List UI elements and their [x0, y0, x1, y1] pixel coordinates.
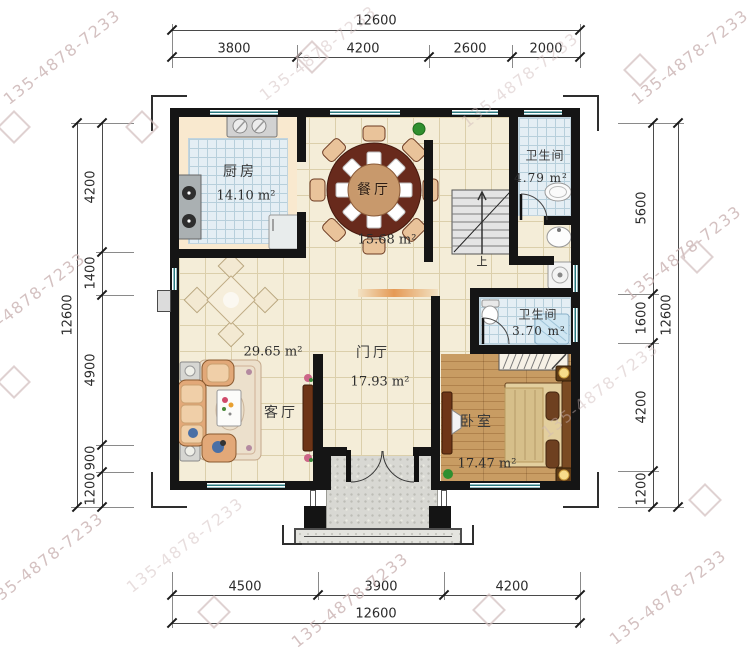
dim-line-top-overall — [172, 30, 580, 31]
dim-bottom-segment-2: 4200 — [495, 580, 528, 595]
wall — [313, 354, 323, 481]
wall — [509, 108, 518, 265]
dim-line-right-segments — [653, 123, 654, 507]
dim-left-overall: 12600 — [61, 294, 76, 335]
dim-line-bottom-overall — [172, 623, 580, 624]
wall — [470, 345, 580, 354]
wall — [331, 447, 347, 456]
dim-left-segment-4: 1200 — [84, 472, 99, 505]
dim-line-top-segments — [172, 57, 580, 58]
wall — [431, 296, 440, 490]
floor-plan: 厨房 14.10 m² 餐厅 15.68 m² 卫生间 4.79 m² 卫生间 … — [0, 0, 750, 657]
dim-left-segment-3: 900 — [84, 446, 99, 471]
dim-top-segment-2: 2600 — [453, 42, 486, 57]
dim-line-right-overall — [678, 123, 679, 507]
bedroom-label: 卧室 — [460, 411, 494, 431]
wall — [478, 288, 580, 297]
corner-mark — [282, 525, 302, 545]
bath-upper-area: 4.79 m² — [514, 171, 568, 185]
dim-line-left-segments — [102, 123, 103, 507]
wall — [170, 108, 179, 490]
watermark-diamond — [0, 110, 31, 144]
watermark-text: 135-4878-7233 — [0, 508, 107, 611]
corner-mark — [563, 95, 599, 131]
wall — [509, 256, 554, 265]
dim-left-segment-2: 4900 — [84, 353, 99, 386]
watermark-text: 135-4878-7233 — [628, 5, 750, 108]
dim-top-segment-3: 2000 — [529, 42, 562, 57]
watermark-text: 135-4878-7233 — [0, 5, 124, 108]
dim-top-segment-1: 4200 — [346, 42, 379, 57]
window — [573, 265, 578, 292]
corner-mark — [151, 95, 187, 131]
watermark-diamond — [688, 483, 722, 517]
dim-right-segment-1: 1600 — [635, 301, 650, 334]
porch-column — [304, 506, 326, 528]
corner-mark — [454, 525, 474, 545]
window — [210, 110, 278, 115]
dim-line-left-overall — [77, 123, 78, 507]
dim-left-segment-1: 1400 — [84, 256, 99, 289]
window — [330, 110, 400, 115]
bedroom-area: 17.47 m² — [458, 457, 517, 472]
porch-column — [429, 506, 451, 528]
stairs-up-label: 上 — [477, 253, 488, 269]
bath-lower-area: 3.70 m² — [512, 324, 566, 338]
dim-bottom-segment-1: 3900 — [364, 580, 397, 595]
dim-right-segment-2: 4200 — [635, 390, 650, 423]
foyer-area: 17.93 m² — [351, 375, 410, 390]
watermark-diamond — [0, 365, 31, 399]
wall — [322, 447, 331, 490]
kitchen-area: 14.10 m² — [217, 189, 276, 204]
dim-right-overall: 12600 — [660, 294, 675, 335]
wall — [424, 140, 433, 262]
bath-lower-label: 卫生间 — [518, 306, 557, 323]
dim-left-segment-0: 4200 — [84, 170, 99, 203]
dim-line-bottom-segments — [172, 595, 580, 596]
wall — [297, 212, 306, 258]
window — [172, 268, 177, 290]
dim-bottom-overall: 12600 — [355, 607, 396, 622]
bath-upper-label: 卫生间 — [525, 147, 564, 164]
bay-box — [157, 290, 171, 312]
wall — [170, 249, 306, 258]
foyer-label: 门厅 — [356, 342, 390, 362]
bath-upper-floor — [518, 117, 571, 216]
dining-label: 餐厅 — [357, 179, 391, 199]
wall — [297, 108, 306, 162]
window — [207, 483, 285, 488]
porch-steps — [294, 528, 462, 545]
dim-top-segment-0: 3800 — [217, 42, 250, 57]
wall — [571, 108, 580, 490]
window — [470, 483, 540, 488]
dim-right-segment-3: 1200 — [635, 472, 650, 505]
porch-platform — [326, 456, 438, 528]
window — [524, 110, 562, 115]
kitchen-label: 厨房 — [223, 161, 257, 181]
watermark-text: 135-4878-7233 — [288, 548, 412, 651]
wall — [544, 216, 580, 225]
dining-area: 15.68 m² — [358, 233, 417, 248]
corner-mark — [151, 472, 187, 508]
watermark-text: 135-4878-7233 — [606, 545, 730, 648]
dim-bottom-segment-0: 4500 — [228, 580, 261, 595]
watermark-diamond — [680, 240, 714, 274]
corner-mark — [563, 472, 599, 508]
living-label: 客厅 — [264, 402, 298, 422]
watermark-diamond — [472, 593, 506, 627]
dim-right-segment-0: 5600 — [635, 191, 650, 224]
window — [573, 308, 578, 342]
dim-top-overall: 12600 — [355, 14, 396, 29]
watermark-diamond — [623, 53, 657, 87]
window — [452, 110, 498, 115]
living-area: 29.65 m² — [244, 345, 303, 360]
watermark-text: 135-4878-7233 — [0, 248, 89, 351]
threshold-strip — [358, 289, 438, 297]
